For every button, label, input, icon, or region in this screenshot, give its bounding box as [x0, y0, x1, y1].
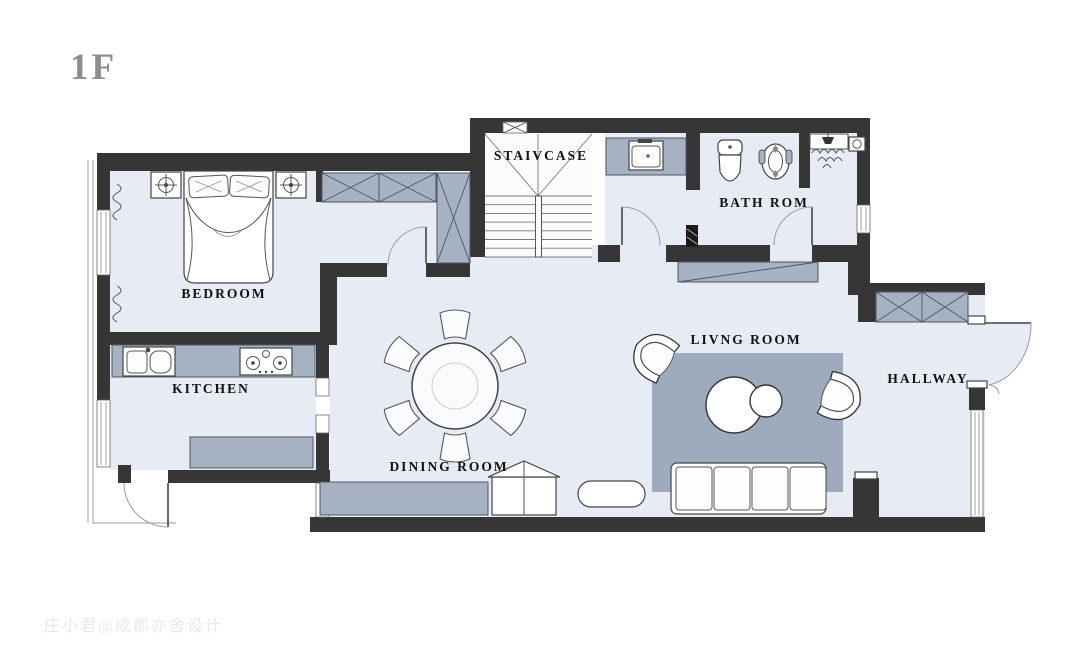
sofa-cushion: [790, 467, 826, 510]
drain: [646, 154, 650, 158]
bedroom-label: BEDROOM: [181, 286, 266, 301]
pillar: [853, 478, 879, 519]
wall-segment: [426, 263, 437, 277]
kitchen-door-jamb: [316, 378, 329, 396]
faucet: [638, 139, 652, 143]
post-cap: [967, 381, 987, 388]
staircase-label: STAIVCASE: [494, 148, 588, 163]
hallway-label: HALLWAY: [887, 371, 968, 386]
coffee-table-small: [750, 385, 782, 417]
sofa-cushion: [752, 467, 788, 510]
sofa: [671, 463, 826, 514]
knob: [259, 371, 261, 373]
kitchen-label: KITCHEN: [172, 381, 250, 396]
kitchen-door-arc: [124, 483, 168, 527]
burner-dot: [251, 361, 255, 365]
wall-segment: [666, 245, 770, 262]
wall-segment: [812, 245, 860, 262]
wall-segment: [310, 517, 985, 532]
wall-segment: [470, 118, 870, 133]
dining-chair: [440, 433, 470, 462]
burner-dot: [278, 361, 282, 365]
dining-room-label: DINING ROOM: [389, 459, 508, 474]
wall-segment: [168, 470, 330, 483]
wall-segment: [799, 133, 810, 188]
hallway: [876, 292, 968, 322]
dining-table: [412, 343, 498, 429]
bench-stool: [578, 481, 645, 507]
sofa-cushion: [714, 467, 750, 510]
wall-segment: [97, 153, 110, 210]
faucet: [146, 348, 151, 353]
entry-door-post: [969, 388, 985, 410]
knob: [265, 371, 267, 373]
wall-segment: [858, 292, 876, 322]
kitchen-door-jamb: [316, 415, 329, 433]
entry-door-curl: [989, 385, 999, 394]
sofa-cushion: [676, 467, 712, 510]
bidet-pad: [786, 150, 792, 164]
living-room-label: LIVNG ROOM: [690, 332, 801, 347]
hallway-window: [971, 410, 983, 517]
lamp-dot: [289, 183, 293, 187]
wall-sill: [968, 316, 985, 324]
wall-segment: [857, 118, 870, 205]
floor-plan-canvas: 1F: [0, 0, 1080, 653]
floor-plan-drawing: BEDROOM KITCHEN STAIVCASE BATH ROM LIVNG…: [0, 0, 1080, 653]
tv-console: [320, 482, 488, 515]
wall-segment: [437, 263, 470, 277]
bathroom-window: [857, 205, 870, 233]
bathroom-label: BATH ROM: [719, 195, 809, 210]
watermark: 庄小君@成都亦舍设计: [44, 612, 223, 636]
washbasin-bowl: [632, 146, 660, 167]
wall-segment: [316, 433, 329, 470]
stair-divider: [536, 196, 542, 257]
dining-chair: [440, 310, 470, 339]
wall-segment: [320, 263, 337, 345]
wall-segment: [316, 345, 329, 378]
sink-basin: [150, 351, 171, 373]
sink-basin: [127, 351, 147, 373]
flush-button: [728, 145, 732, 149]
wall-segment: [97, 153, 470, 171]
lamp-dot: [164, 183, 168, 187]
wall-segment: [470, 118, 485, 257]
corner-sink: [849, 137, 865, 151]
wall-segment: [97, 332, 325, 345]
bidet-pad: [759, 150, 765, 164]
wall-segment: [598, 245, 620, 262]
kitchen-window: [97, 400, 110, 467]
bidet-bowl: [769, 151, 783, 173]
kitchen-island: [190, 437, 313, 468]
bedroom-window: [97, 210, 110, 275]
knob: [271, 371, 273, 373]
pillar-cap: [855, 472, 877, 479]
wall-segment: [686, 133, 700, 190]
wall-segment: [118, 465, 131, 483]
